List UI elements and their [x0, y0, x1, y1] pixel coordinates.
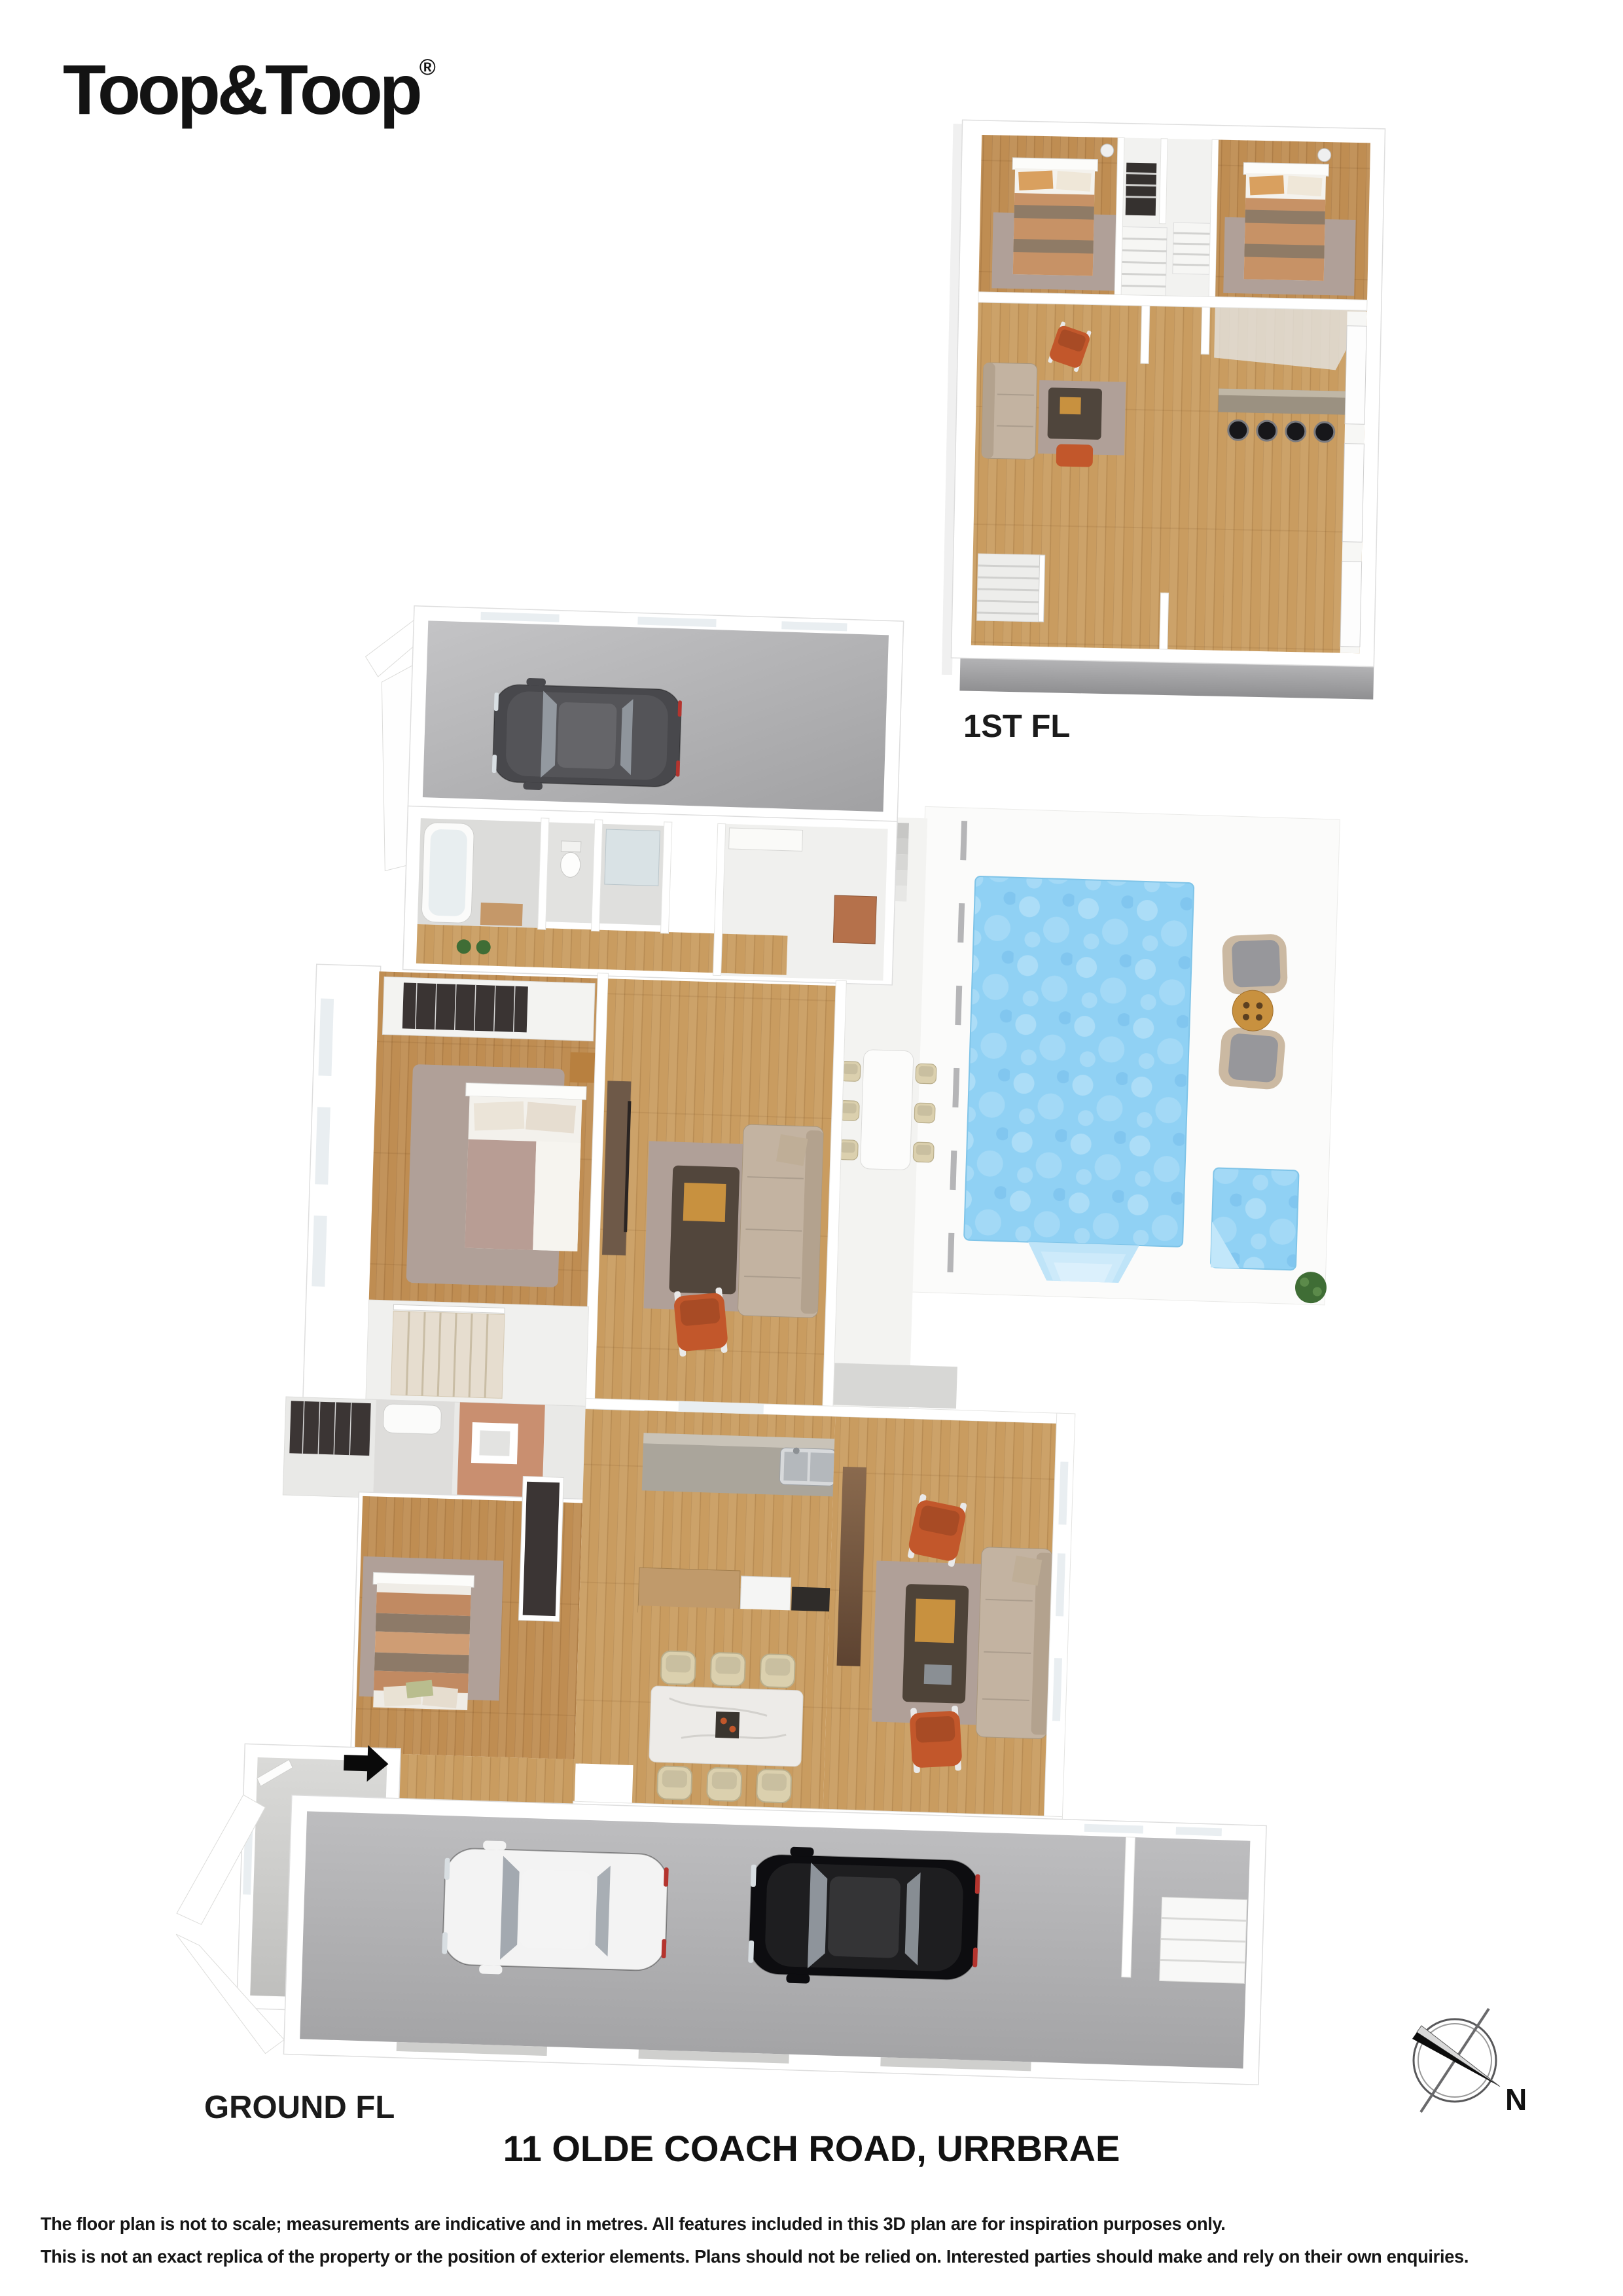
- ground-floor-label: GROUND FL: [204, 2089, 395, 2126]
- family-room: [594, 978, 838, 1420]
- coffee-table: [669, 1165, 740, 1294]
- sofa: [976, 1547, 1054, 1739]
- master-bedroom: [369, 971, 601, 1306]
- bedside-table: [569, 1052, 595, 1083]
- bed: [1241, 162, 1329, 281]
- bed: [461, 1083, 586, 1251]
- sink: [779, 1447, 836, 1486]
- toop-and-toop-logo: Toop&Toop®: [63, 48, 436, 130]
- bathroom: [418, 818, 541, 928]
- first-floor-label: 1ST FL: [963, 708, 1070, 745]
- property-address: 11 OLDE COACH ROAD, URRBRAE: [0, 2127, 1623, 2170]
- bed: [369, 1572, 474, 1710]
- black-car: [747, 1846, 980, 1989]
- compass-north-label: N: [1505, 2083, 1527, 2117]
- bedroom-2: [351, 1471, 588, 1764]
- dining-room: [632, 1605, 829, 1820]
- robe: [523, 1482, 560, 1616]
- utility-wing: [403, 806, 897, 984]
- vanity: [480, 903, 523, 926]
- north-needle: [1412, 2032, 1500, 2087]
- logo-text: Toop&Toop: [63, 50, 419, 129]
- disclaimer-line-1: The floor plan is not to scale; measurem…: [41, 2214, 1226, 2234]
- first-floor-bedroom-1: [978, 135, 1120, 295]
- lounge-chair: [909, 1706, 963, 1773]
- bed: [1010, 158, 1098, 276]
- sofa: [738, 1124, 823, 1318]
- ottoman: [1056, 444, 1094, 467]
- bathtub: [383, 1404, 441, 1435]
- floor-lamp: [1317, 149, 1330, 162]
- first-floor-plan: [941, 120, 1385, 700]
- stair-hall: [366, 1300, 589, 1406]
- registered-mark: ®: [419, 55, 436, 80]
- floorplan-sheet: N Toop&Toop® 1ST FL GROUND FL 11 OLDE CO…: [0, 0, 1623, 2296]
- outdoor-dining: [837, 1049, 937, 1171]
- cabinet: [833, 895, 876, 944]
- white-car: [441, 1839, 669, 1979]
- swimming-pool: [964, 876, 1194, 1247]
- bottom-garage: [173, 1791, 1267, 2085]
- shower-room: [598, 824, 666, 925]
- walk-in-robe: [289, 1401, 370, 1456]
- disclaimer-line-2: This is not an exact replica of the prop…: [41, 2246, 1469, 2267]
- lounge-chair: [673, 1287, 729, 1357]
- hall-bottom: [390, 1753, 576, 1804]
- coffee-table: [1047, 387, 1102, 440]
- first-floor-rumpus-room: [971, 292, 1367, 653]
- compass-icon: N: [1412, 2009, 1527, 2117]
- outdoor-table: [860, 1050, 914, 1170]
- ground-floor-plan: [173, 600, 1347, 2086]
- coffee-table: [902, 1584, 969, 1704]
- sofa: [982, 363, 1037, 459]
- wardrobe: [382, 977, 595, 1041]
- storage-shelves: [1160, 1897, 1247, 1983]
- first-floor-closet: [1115, 137, 1219, 296]
- floor-lamp: [1101, 144, 1114, 157]
- first-floor-bedroom-2: [1215, 140, 1370, 300]
- wc: [544, 822, 596, 923]
- stairwell: [977, 554, 1045, 622]
- gray-car: [491, 677, 683, 794]
- floorplan-canvas: N: [0, 0, 1623, 2296]
